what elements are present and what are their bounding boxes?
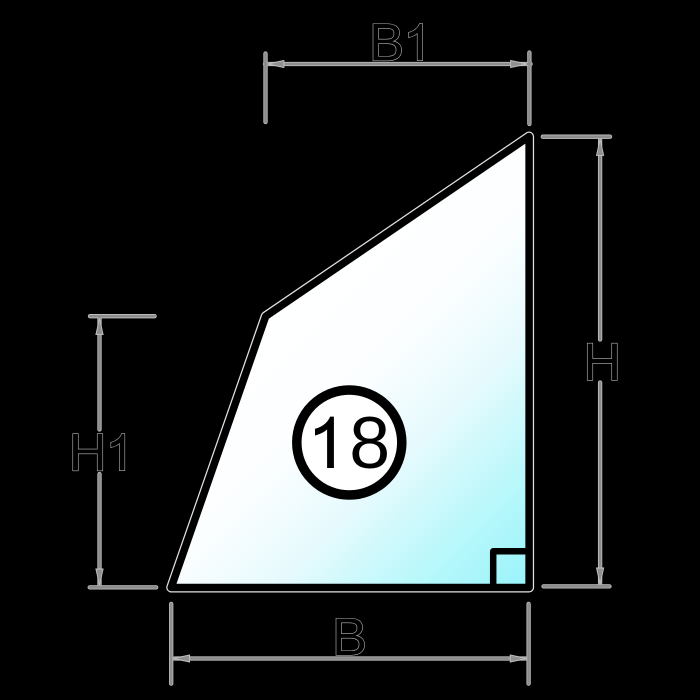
svg-text:8: 8 — [349, 401, 390, 484]
svg-text:B: B — [332, 608, 367, 667]
svg-text:B: B — [369, 13, 404, 72]
svg-text:H: H — [69, 423, 107, 482]
svg-text:H: H — [583, 333, 621, 392]
